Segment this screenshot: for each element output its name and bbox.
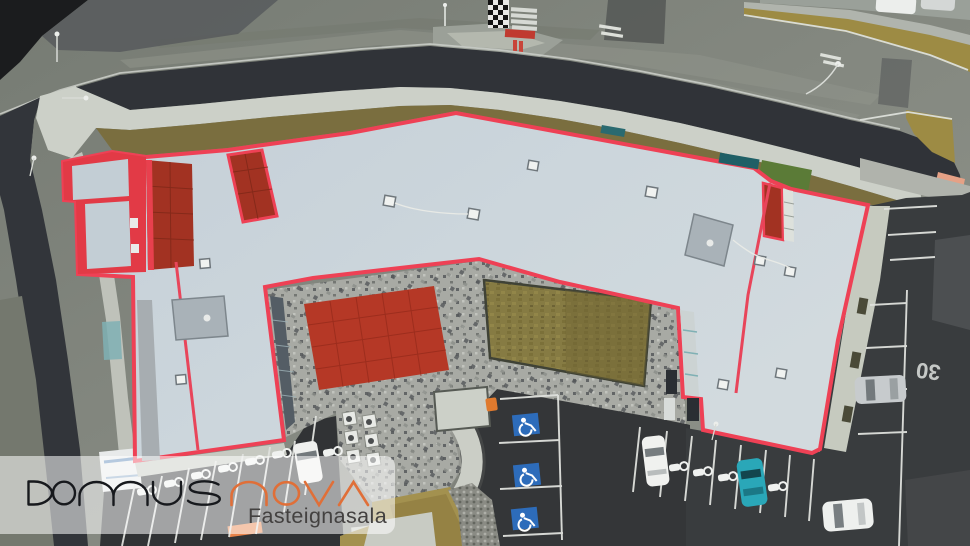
svg-text:30: 30: [915, 358, 942, 386]
svg-text:Fasteignasala: Fasteignasala: [248, 504, 387, 528]
